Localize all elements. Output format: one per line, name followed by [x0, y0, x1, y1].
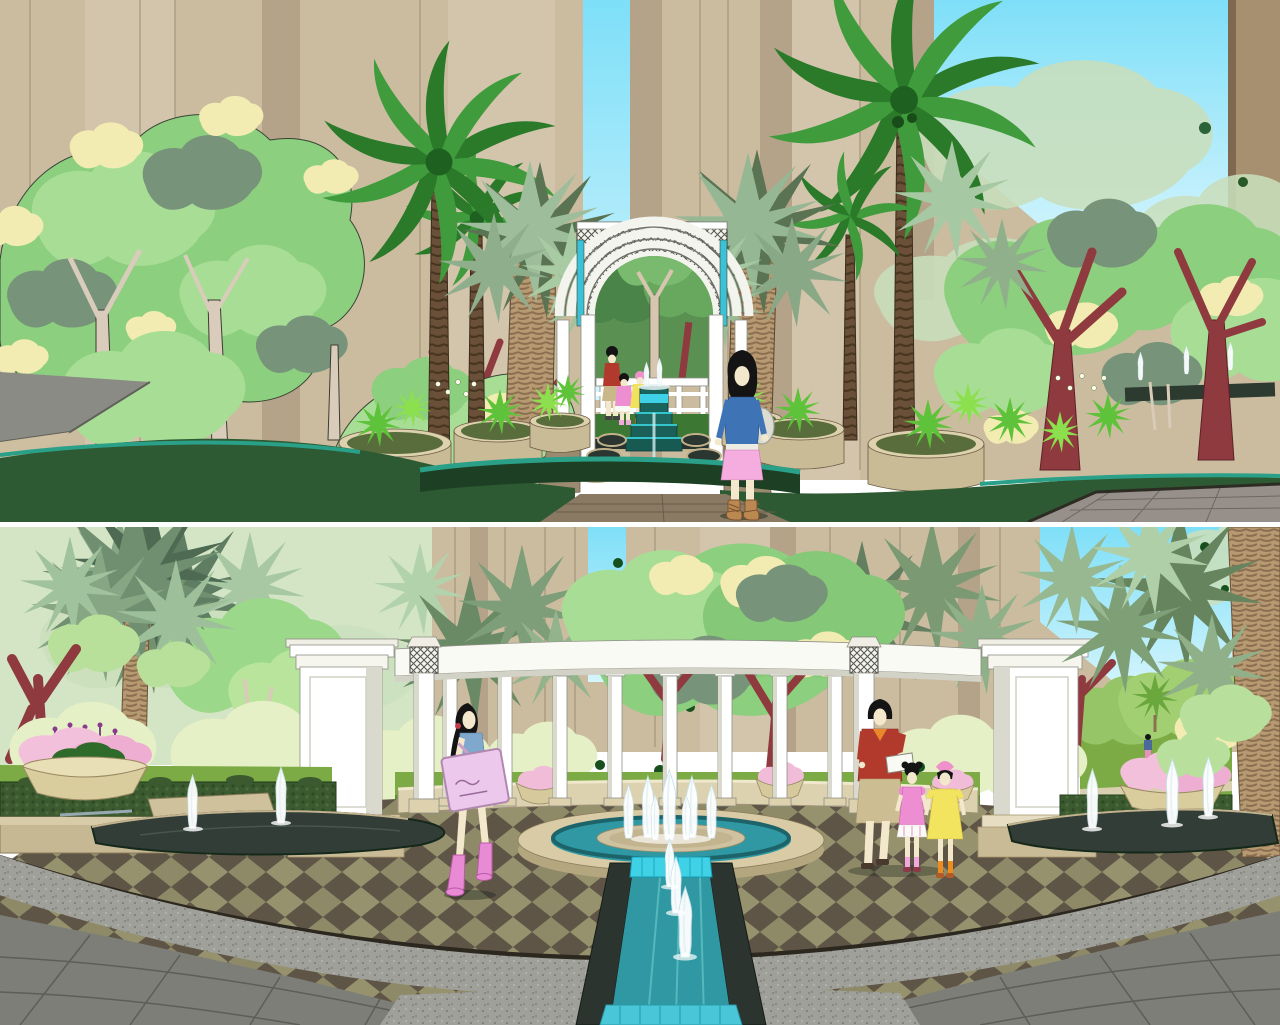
face — [463, 711, 476, 729]
walkway-illustration — [0, 0, 1280, 522]
tiny-distant-figure — [1144, 734, 1152, 758]
face — [735, 366, 750, 386]
planter-right-f — [868, 430, 984, 492]
blue-top — [725, 397, 758, 446]
face — [907, 772, 917, 784]
render-board — [0, 0, 1280, 1025]
hair-band — [455, 723, 461, 729]
face — [874, 709, 887, 726]
plaza-illustration — [0, 527, 1280, 1025]
belt — [726, 444, 758, 450]
panel-bottom-plaza — [0, 527, 1280, 1025]
planter-left-c — [530, 413, 590, 453]
pink-dress — [899, 787, 925, 825]
khaki-skirt — [856, 779, 904, 823]
pink-skirt — [721, 450, 763, 480]
panel-top-walkway — [0, 0, 1280, 522]
face — [940, 773, 951, 786]
teal-accent-right — [720, 240, 727, 326]
teal-accent-left — [577, 240, 584, 326]
